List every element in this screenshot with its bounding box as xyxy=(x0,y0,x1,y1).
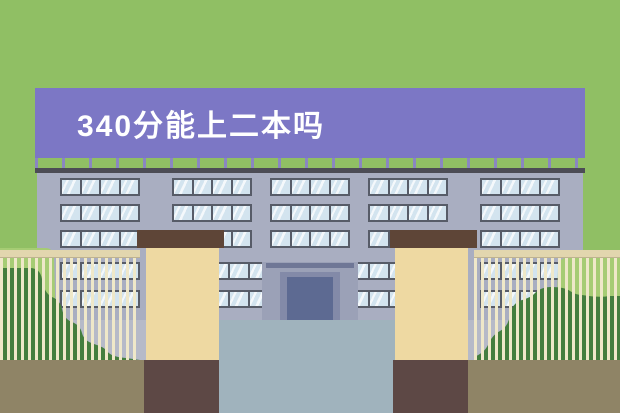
window-pane xyxy=(121,206,139,220)
window-pane xyxy=(331,206,349,220)
window-pane xyxy=(82,232,100,246)
window-pane xyxy=(370,264,388,278)
window-pane xyxy=(429,180,447,194)
banner-title: 340分能上二本吗 xyxy=(35,101,325,145)
window-pane xyxy=(331,232,349,246)
window-pane xyxy=(101,180,119,194)
window-pane xyxy=(174,180,192,194)
window-pane xyxy=(409,206,427,220)
window-pane xyxy=(409,180,427,194)
window-strip xyxy=(270,178,350,196)
window-pane xyxy=(292,180,310,194)
window-pane xyxy=(292,232,310,246)
window-pane xyxy=(482,180,500,194)
window-pane xyxy=(292,206,310,220)
left-pillar-cap xyxy=(137,230,224,248)
right-pillar-base xyxy=(393,360,468,413)
window-pane xyxy=(62,232,80,246)
window-pane xyxy=(390,180,408,194)
window-pane xyxy=(390,206,408,220)
window-pane xyxy=(521,232,539,246)
fence-bars-right xyxy=(474,258,620,360)
window-strip xyxy=(172,204,252,222)
window-strip xyxy=(172,178,252,196)
window-pane xyxy=(482,232,500,246)
window-strip xyxy=(368,204,448,222)
window-pane xyxy=(331,180,349,194)
window-pane xyxy=(429,206,447,220)
window-pane xyxy=(174,206,192,220)
window-pane xyxy=(233,180,251,194)
entrance-lintel xyxy=(266,263,354,268)
fence-rail-right xyxy=(474,250,620,258)
window-pane xyxy=(213,180,231,194)
window-pane xyxy=(194,180,212,194)
window-strip xyxy=(368,178,448,196)
window-pane xyxy=(521,180,539,194)
window-pane xyxy=(370,180,388,194)
school-illustration-scene: 340分能上二本吗 xyxy=(0,0,620,413)
window-pane xyxy=(62,206,80,220)
window-strip xyxy=(480,204,560,222)
window-pane xyxy=(82,180,100,194)
right-pillar-cap xyxy=(390,230,477,248)
window-strip xyxy=(480,178,560,196)
window-pane xyxy=(233,232,251,246)
window-pane xyxy=(502,180,520,194)
window-pane xyxy=(230,292,248,306)
window-pane xyxy=(541,232,559,246)
window-pane xyxy=(370,232,388,246)
window-pane xyxy=(272,232,290,246)
window-pane xyxy=(541,206,559,220)
window-pane xyxy=(541,180,559,194)
window-pane xyxy=(82,206,100,220)
window-pane xyxy=(194,206,212,220)
entrance-path xyxy=(219,320,397,413)
window-pane xyxy=(370,292,388,306)
window-pane xyxy=(101,232,119,246)
window-pane xyxy=(230,264,248,278)
window-pane xyxy=(502,232,520,246)
window-pane xyxy=(62,180,80,194)
banner-sign: 340分能上二本吗 xyxy=(35,88,585,158)
window-strip xyxy=(60,178,140,196)
window-pane xyxy=(272,180,290,194)
entrance-door xyxy=(287,277,333,320)
left-pillar-base xyxy=(144,360,219,413)
window-pane xyxy=(311,180,329,194)
window-pane xyxy=(311,206,329,220)
fence-rail-left xyxy=(0,250,140,258)
building-roofline xyxy=(35,168,585,173)
window-pane xyxy=(101,206,119,220)
window-pane xyxy=(121,232,139,246)
right-pillar xyxy=(395,248,468,360)
window-pane xyxy=(233,206,251,220)
window-pane xyxy=(370,206,388,220)
fence-bars-left xyxy=(0,258,140,360)
window-pane xyxy=(121,180,139,194)
sign-support-posts xyxy=(35,158,585,168)
window-strip xyxy=(270,230,350,248)
window-strip xyxy=(270,204,350,222)
left-pillar xyxy=(146,248,219,360)
window-pane xyxy=(213,206,231,220)
window-pane xyxy=(272,206,290,220)
window-pane xyxy=(311,232,329,246)
window-pane xyxy=(482,206,500,220)
window-pane xyxy=(502,206,520,220)
window-strip xyxy=(60,204,140,222)
window-pane xyxy=(521,206,539,220)
